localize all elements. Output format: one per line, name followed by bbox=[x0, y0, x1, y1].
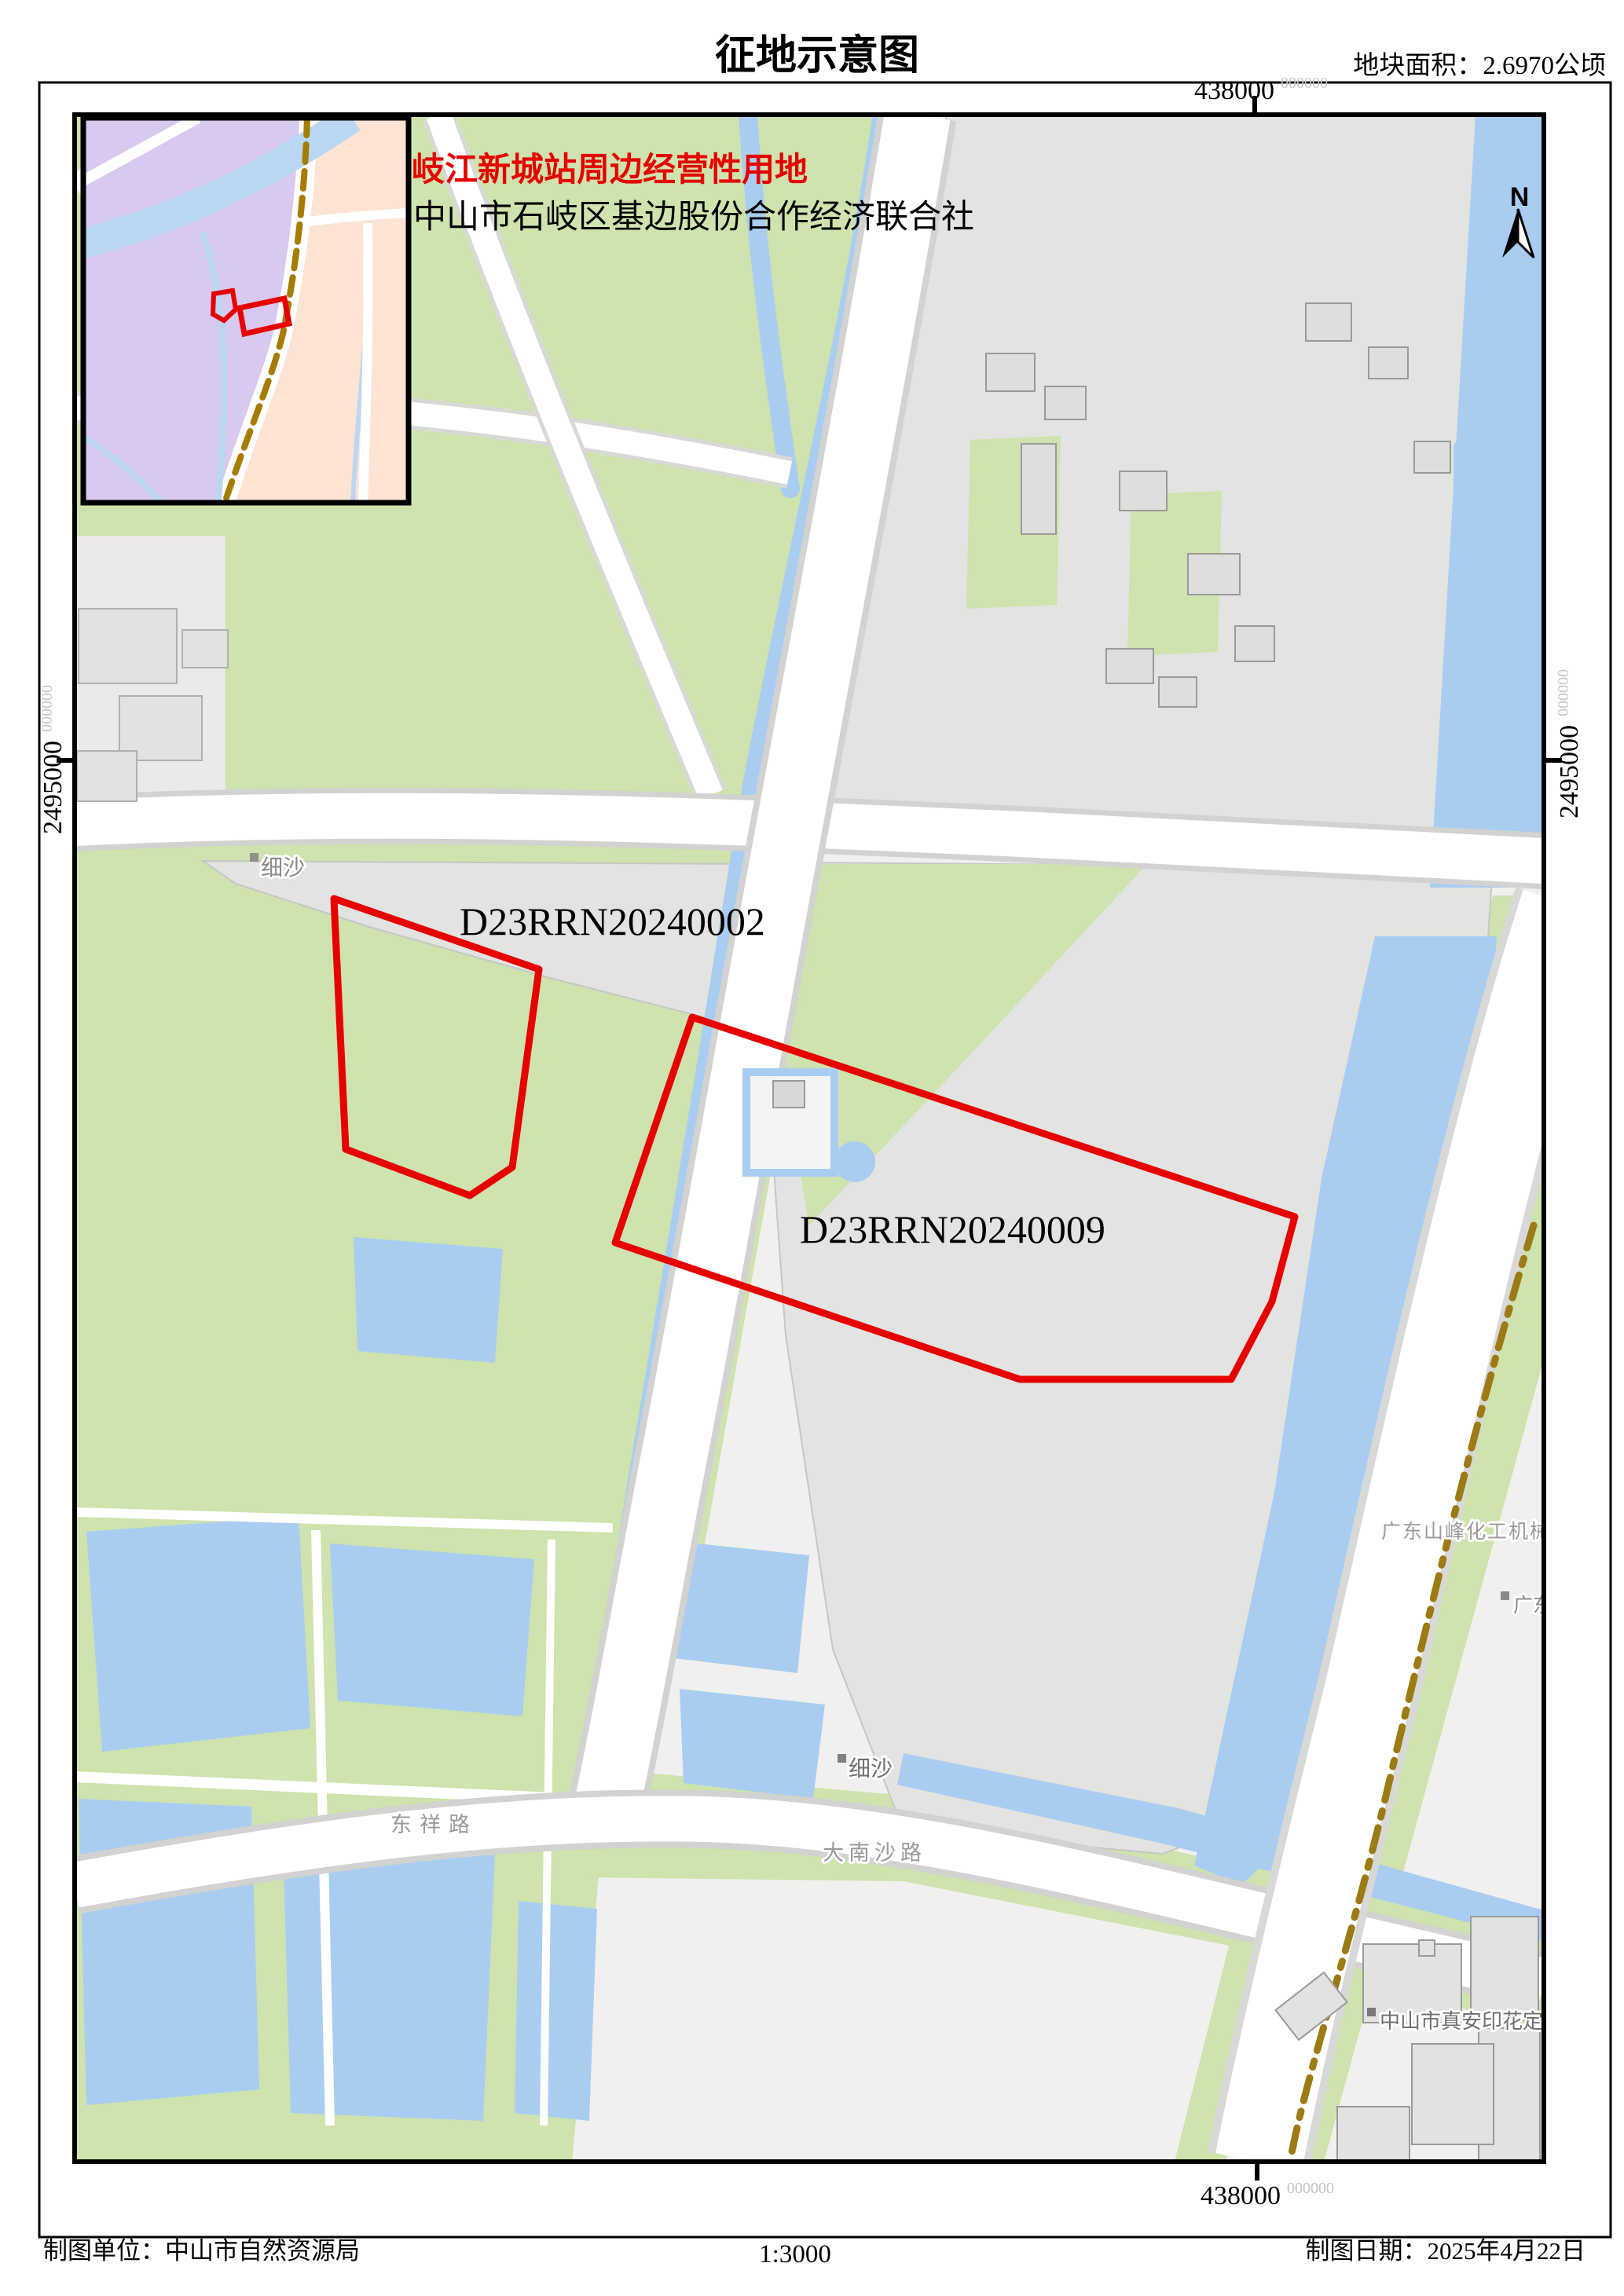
fish-pond bbox=[515, 1901, 597, 2121]
label-xisha-top: 细沙 bbox=[261, 855, 305, 880]
small-pond bbox=[1454, 440, 1497, 514]
area-label: 地块面积：2.6970公顷 bbox=[1353, 51, 1606, 80]
inset-road bbox=[363, 223, 368, 503]
round-pond bbox=[834, 1141, 875, 1182]
label-danansha-road: 大南沙路 bbox=[823, 1841, 926, 1865]
coord-x-top-sup: 000000 bbox=[1281, 75, 1328, 92]
footer-date: 制图日期：2025年4月22日 bbox=[1306, 2237, 1586, 2265]
fish-pond bbox=[354, 1237, 503, 1363]
poi-marker bbox=[1501, 1591, 1509, 1600]
annotation-black: 中山市石岐区基边股份合作经济联合社 bbox=[413, 198, 974, 235]
fish-pond bbox=[283, 1838, 495, 2121]
coord-y-left-group: 2495000 000000 bbox=[38, 685, 68, 834]
page-title: 征地示意图 bbox=[715, 33, 919, 79]
fish-pond bbox=[86, 1516, 310, 1752]
footer-agency: 制图单位：中山市自然资源局 bbox=[43, 2237, 360, 2265]
poi-marker bbox=[250, 853, 258, 862]
poi-marker bbox=[1367, 2008, 1376, 2016]
coord-y-right-sup: 000000 bbox=[1555, 669, 1572, 716]
fish-pond bbox=[680, 1689, 825, 1799]
poi-marker bbox=[838, 1754, 846, 1763]
parcel-id-2: D23RRN20240009 bbox=[800, 1207, 1105, 1251]
building bbox=[773, 1081, 805, 1108]
coord-x-top: 438000 bbox=[1194, 76, 1274, 105]
inset-locator-map bbox=[83, 118, 409, 503]
label-dongxiang-road: 东祥路 bbox=[390, 1813, 478, 1836]
parcel-id-1: D23RRN20240002 bbox=[460, 899, 765, 943]
coord-x-bottom-sup: 000000 bbox=[1287, 2180, 1334, 2197]
coord-x-bottom: 438000 bbox=[1201, 2181, 1281, 2210]
annotation-red: 岐江新城站周边经营性用地 bbox=[412, 151, 808, 188]
land-acquisition-map-page: 细沙 东祥路 大南沙路 细沙 广东山峰化工机械有 广东 中山市真安印花定型 D2… bbox=[0, 0, 1624, 2296]
coord-y-right-group: 2495000 000000 bbox=[1555, 669, 1584, 818]
label-print-factory: 中山市真安印花定型 bbox=[1380, 2009, 1564, 2033]
coord-y-left-sup: 000000 bbox=[38, 685, 56, 732]
coord-y-right: 2495000 bbox=[1555, 725, 1584, 818]
label-xisha-bottom: 细沙 bbox=[849, 1756, 893, 1781]
north-label: N bbox=[1510, 182, 1530, 212]
label-guangdong-partial: 广东 bbox=[1513, 1595, 1553, 1617]
fish-pond bbox=[330, 1543, 534, 1716]
footer-scale: 1:3000 bbox=[759, 2240, 831, 2269]
coord-y-left: 2495000 bbox=[38, 741, 68, 834]
